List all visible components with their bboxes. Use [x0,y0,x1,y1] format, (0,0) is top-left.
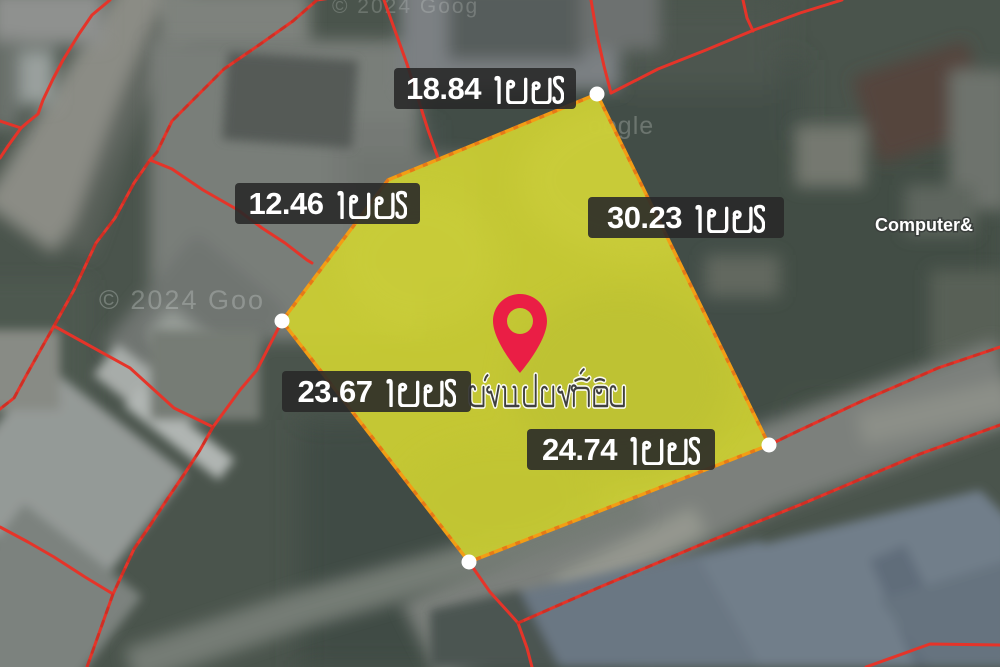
svg-text:© 2024 Goog: © 2024 Goog [332,0,479,18]
svg-text:Computer&: Computer& [875,215,973,235]
svg-text:© 2024 Goo: © 2024 Goo [99,285,265,315]
